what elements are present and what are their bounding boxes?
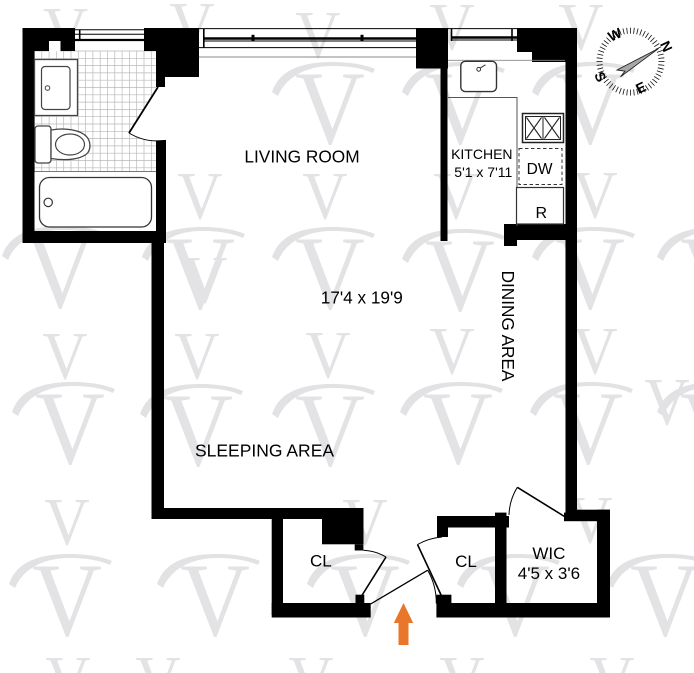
svg-text:5'1 x 7'11: 5'1 x 7'11: [454, 164, 512, 180]
svg-text:CL: CL: [455, 552, 477, 571]
svg-text:17'4 x 19'9: 17'4 x 19'9: [321, 288, 403, 308]
svg-text:WIC: WIC: [532, 544, 565, 563]
svg-text:4'5 x 3'6: 4'5 x 3'6: [518, 564, 580, 583]
svg-text:KITCHEN: KITCHEN: [451, 146, 512, 162]
svg-text:LIVING ROOM: LIVING ROOM: [244, 147, 359, 167]
svg-text:CL: CL: [310, 551, 332, 570]
svg-text:SLEEPING AREA: SLEEPING AREA: [195, 441, 334, 461]
svg-text:R: R: [536, 205, 548, 222]
svg-text:DW: DW: [527, 161, 553, 178]
svg-text:DINING AREA: DINING AREA: [498, 271, 518, 382]
